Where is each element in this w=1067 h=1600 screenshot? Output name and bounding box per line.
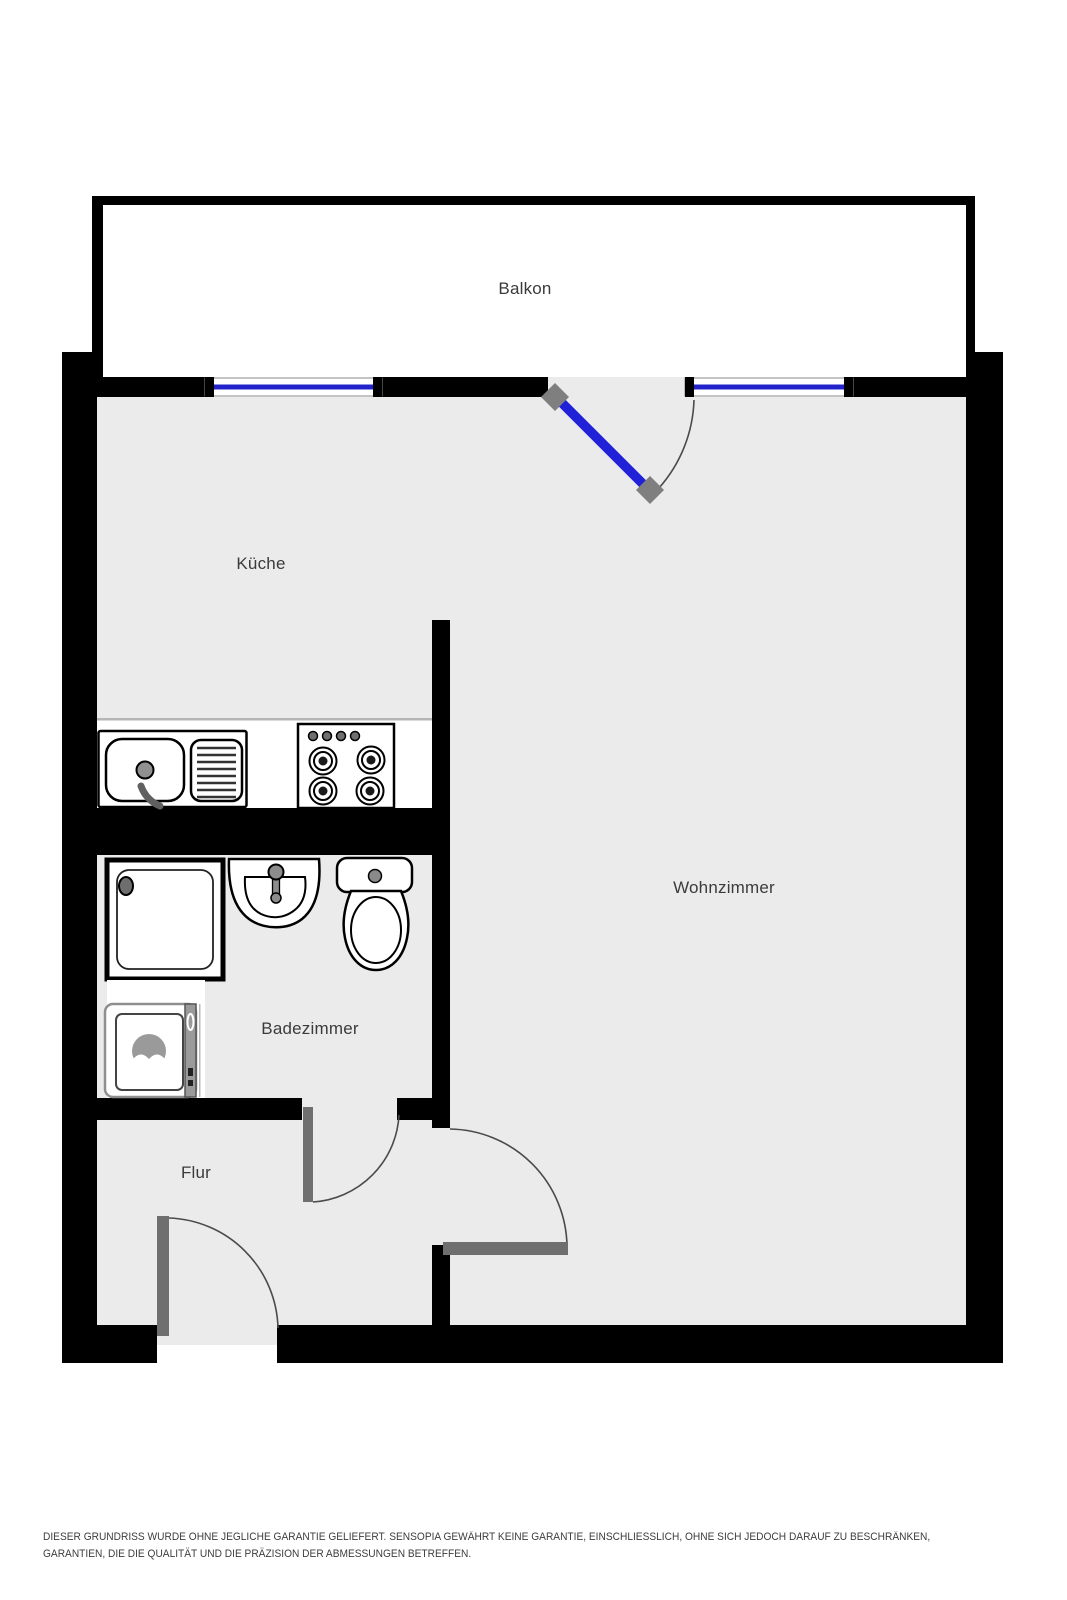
wall-left [62,377,97,1363]
entry-door-leaf [157,1216,169,1336]
room-label-badezimmer: Badezimmer [261,1019,358,1039]
counter-edge [97,718,432,721]
shower-icon [107,860,223,979]
floorplan-drawing [0,0,1067,1600]
stove-icon [298,724,394,808]
wall-bathroom-south-right [397,1098,450,1120]
wall-corner-top-left [62,352,103,377]
wall-top-seg-a [97,377,205,397]
entry-door-threshold [157,1325,277,1345]
floorplan-page: Balkon Küche Wohnzimmer Badezimmer Flur … [0,0,1067,1600]
wall-top-seg-c [853,377,966,397]
wall-right [966,377,1003,1363]
wall-top-seg-b [382,377,548,397]
wall-bathroom-south-left [97,1098,302,1120]
wall-bottom-right-of-entry [277,1325,1003,1363]
balcony-wall-left [92,196,103,377]
bathroom-door-leaf [303,1107,313,1202]
wall-bottom-left-of-entry [62,1325,157,1363]
wall-corner-top-right [966,352,1003,377]
living-room-door-leaf [443,1242,568,1255]
wall-flur-livingroom [432,1245,450,1325]
drainboard [191,740,242,801]
room-label-flur: Flur [181,1163,211,1183]
room-label-balkon: Balkon [498,279,551,299]
washing-machine-icon [105,980,205,1098]
kitchen-sink-icon [99,731,247,807]
disclaimer-text: DIESER GRUNDRISS WURDE OHNE JEGLICHE GAR… [43,1529,989,1562]
kitchen-counter [97,718,432,808]
window-right-icon [685,377,853,397]
room-label-kueche: Küche [236,554,285,574]
wall-kitchen-livingroom [432,620,450,1128]
interior-floor [97,397,966,1325]
window-left-icon [205,377,382,397]
balcony-wall-right [966,196,975,377]
balcony-door-threshold [548,377,685,397]
room-label-wohnzimmer: Wohnzimmer [673,878,775,898]
balcony-wall-top [92,196,975,205]
wall-kitchen-bathroom [97,808,450,855]
